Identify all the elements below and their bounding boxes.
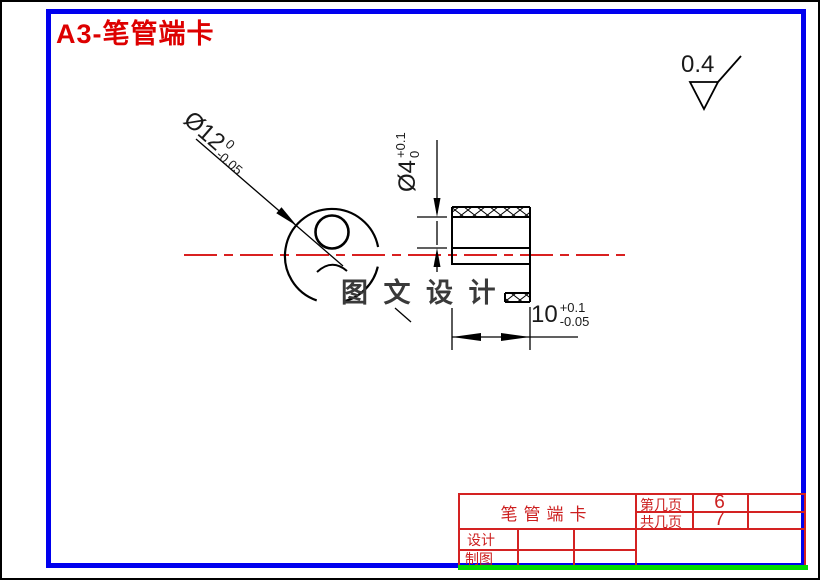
hole-circle (316, 216, 349, 249)
right-arrowhead (501, 333, 530, 341)
titleblock-total-value: 7 (692, 509, 747, 531)
dia4-dimension-text: Ø4 +0.1 0 (394, 132, 423, 192)
dia4-value: Ø4 (396, 160, 420, 192)
leader-arrowhead (276, 207, 297, 226)
titleblock-line (747, 493, 749, 528)
titleblock-line (573, 528, 575, 566)
len10-value: 10 (531, 303, 558, 327)
titleblock-line (517, 528, 519, 566)
titleblock-line (458, 528, 806, 530)
watermark-text: 图 文 设 计 (341, 271, 500, 310)
surface-finish-value: 0.4 (681, 51, 714, 79)
len10-dimension-text: 10 +0.1 -0.05 (531, 301, 589, 330)
titleblock-design-label: 设计 (467, 530, 495, 550)
dia4-tolerance: +0.1 0 (394, 132, 423, 158)
left-arrowhead (452, 333, 481, 341)
down-arrowhead (434, 198, 441, 217)
titleblock-line (635, 493, 637, 566)
titleblock-line (804, 493, 806, 566)
titleblock-line (458, 493, 806, 495)
titleblock-total-label: 共几页 (640, 512, 682, 532)
titleblock-part-name: 笔管端卡 (458, 500, 635, 525)
up-arrowhead (434, 248, 441, 267)
cad-drawing-page: A3-笔管端卡 (0, 0, 820, 580)
len10-tolerance: +0.1 -0.05 (560, 301, 590, 330)
titleblock-draft-label: 制图 (465, 549, 493, 569)
green-bottom-strip (458, 565, 808, 570)
